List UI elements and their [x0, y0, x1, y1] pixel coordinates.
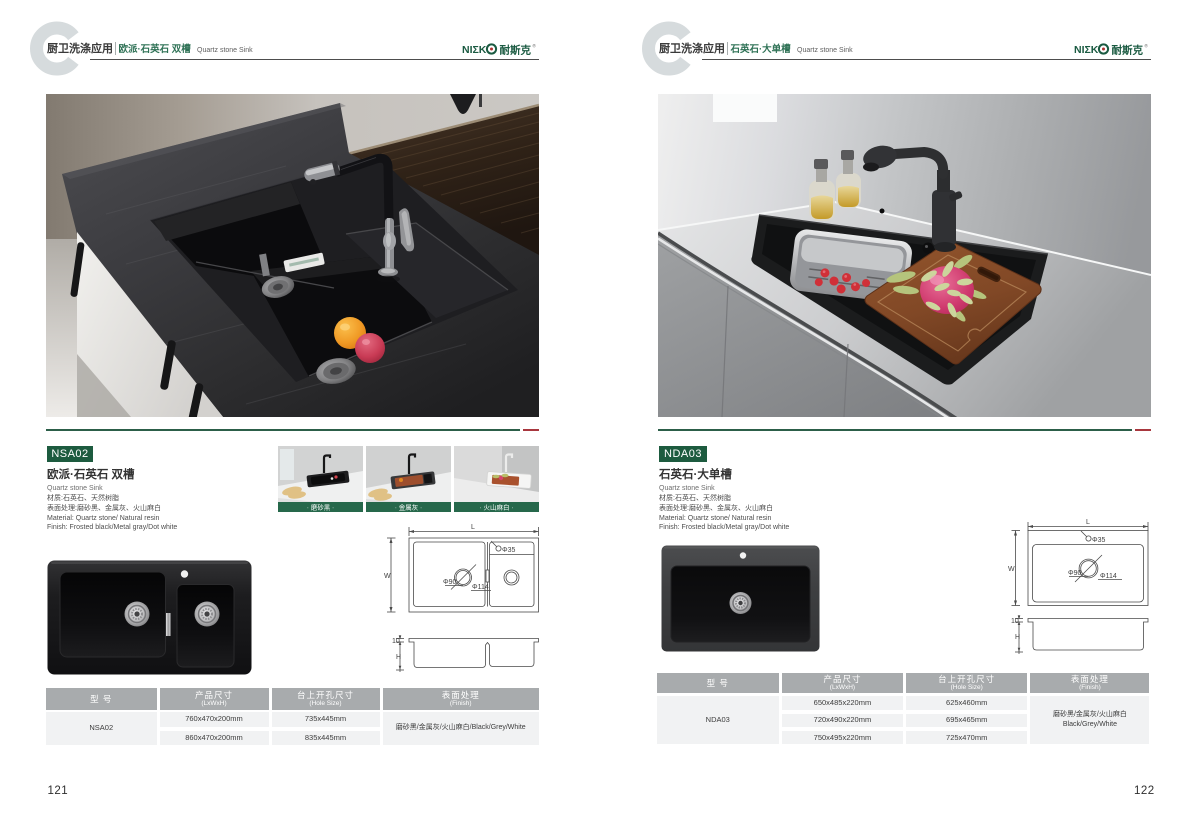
svg-text:®: ®	[533, 43, 537, 49]
svg-text:Φ35: Φ35	[502, 547, 515, 554]
svg-text:®: ®	[1145, 43, 1149, 49]
svg-text:W: W	[384, 573, 391, 580]
svg-text:· 火山麻白 ·: · 火山麻白 ·	[480, 503, 514, 512]
svg-text:L: L	[471, 524, 475, 531]
svg-text:10: 10	[1011, 618, 1019, 625]
svg-text:耐斯克: 耐斯克	[1112, 43, 1144, 55]
svg-text:· 金属灰 ·: · 金属灰 ·	[395, 503, 422, 512]
svg-text:NIΣK: NIΣK	[1074, 44, 1099, 55]
svg-text:Φ90: Φ90	[1068, 570, 1081, 577]
svg-text:Φ35: Φ35	[1092, 537, 1105, 544]
svg-text:H: H	[1015, 634, 1020, 641]
svg-text:L: L	[1086, 519, 1090, 526]
svg-text:10: 10	[392, 638, 400, 645]
svg-text:H: H	[396, 654, 401, 661]
svg-text:Φ114: Φ114	[472, 584, 489, 591]
svg-text:Φ114: Φ114	[1100, 573, 1117, 580]
svg-text:NIΣK: NIΣK	[462, 44, 487, 55]
svg-text:耐斯克: 耐斯克	[500, 43, 532, 55]
svg-text:W: W	[1008, 566, 1015, 573]
svg-text:· 磨砂黑 ·: · 磨砂黑 ·	[307, 503, 334, 512]
svg-text:Φ90: Φ90	[443, 579, 456, 586]
